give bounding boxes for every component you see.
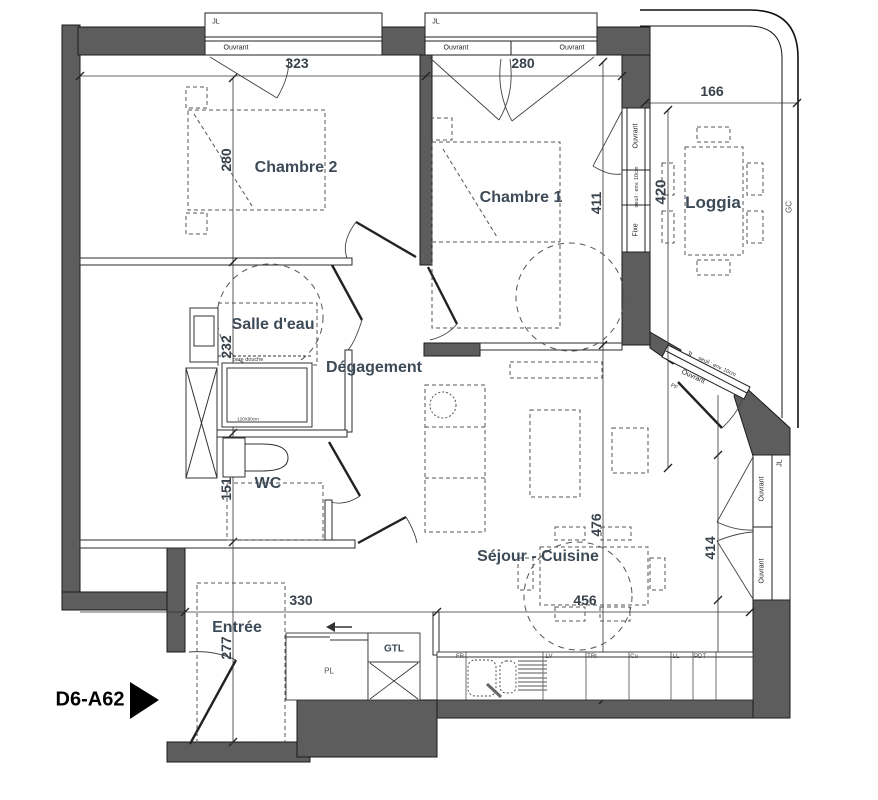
gtl-label: GTL bbox=[384, 644, 404, 655]
floor-plan-drawing bbox=[0, 0, 878, 800]
dim-chambre1-height: 411 bbox=[588, 192, 604, 215]
bed-chambre1 bbox=[430, 118, 560, 328]
dim-sejour-height: 476 bbox=[588, 513, 604, 536]
coffee-table bbox=[530, 410, 580, 497]
closets bbox=[286, 622, 420, 700]
shower bbox=[218, 356, 312, 427]
window-jl-label: JL bbox=[432, 19, 439, 26]
room-label-entree: Entrée bbox=[212, 619, 262, 637]
armchair bbox=[612, 428, 648, 473]
unit-label: D6-A62 bbox=[56, 689, 125, 712]
window-fixe-label: Fixe bbox=[633, 223, 640, 236]
room-label-degagement: Dégagement bbox=[326, 359, 422, 377]
shower-size-label: 120X90cm bbox=[237, 417, 259, 422]
washbasin-bowl bbox=[194, 316, 214, 346]
dim-loggia-height: 420 bbox=[653, 179, 670, 204]
exterior-walls bbox=[62, 25, 790, 762]
dim-sejour-width: 456 bbox=[573, 592, 596, 608]
window-seuil-label: seuil : env. 10cm bbox=[634, 167, 640, 208]
room-label-salle-deau: Salle d'eau bbox=[232, 316, 315, 334]
window-jl-label: JL bbox=[777, 459, 784, 466]
dim-entree-height: 277 bbox=[218, 636, 234, 659]
pare-douche-label: pare douche bbox=[233, 357, 264, 363]
room-label-loggia: Loggia bbox=[685, 193, 741, 213]
dim-wc-height: 151 bbox=[218, 477, 234, 500]
kitchen-label-cu: Cu bbox=[630, 654, 638, 660]
window-ouvrant-label: Ouvrant bbox=[759, 559, 766, 584]
wc-door-leaf bbox=[329, 442, 360, 496]
wall-sejour-stub bbox=[424, 343, 480, 356]
dim-chambre1-width: 280 bbox=[511, 55, 534, 71]
room-label-chambre1: Chambre 1 bbox=[480, 189, 563, 207]
sejour-door-leaf bbox=[358, 517, 406, 543]
room-label-chambre2: Chambre 2 bbox=[255, 159, 338, 177]
window-ouvrant-label: Ouvrant bbox=[444, 45, 469, 52]
entry-direction-arrow bbox=[326, 622, 352, 632]
kitchen-label-fr: FR bbox=[456, 654, 464, 660]
accessibility-zone-entree bbox=[197, 583, 285, 743]
dim-entree-width: 330 bbox=[289, 592, 312, 608]
window-ouvrant-label: Ouvrant bbox=[560, 45, 585, 52]
chambre1-door-leaf bbox=[428, 267, 457, 324]
window-ouvrant-label: Ouvrant bbox=[633, 124, 640, 149]
dim-loggia-width: 166 bbox=[700, 83, 723, 99]
kitchen-label-pd: PDT bbox=[694, 654, 706, 660]
salle-deau-door-leaf bbox=[332, 265, 362, 320]
kitchen-label-tri: TRI bbox=[587, 654, 597, 660]
dim-sejour-window-wall: 414 bbox=[702, 536, 718, 559]
sideboard bbox=[510, 362, 602, 378]
water-heater bbox=[186, 368, 217, 478]
kitchen-label-ll: LL bbox=[673, 654, 680, 660]
loggia-door-leaf bbox=[678, 382, 722, 428]
turning-circle-chambre1 bbox=[516, 243, 624, 351]
window-ouvrant-label: Ouvrant bbox=[759, 477, 766, 502]
sofa bbox=[425, 385, 485, 532]
room-label-sejour: Séjour - Cuisine bbox=[477, 548, 599, 566]
wall-chambre-divider bbox=[420, 55, 432, 265]
dim-chambre2-height: 280 bbox=[218, 148, 234, 171]
dim-chambre2-width: 323 bbox=[285, 55, 308, 71]
floor-plan: Chambre 2 Chambre 1 Loggia Salle d'eau D… bbox=[0, 0, 878, 800]
unit-entrance-arrow-icon bbox=[130, 682, 159, 719]
windows bbox=[205, 13, 790, 600]
window-jl-label: JL bbox=[212, 19, 219, 26]
chambre2-door-leaf bbox=[356, 222, 416, 257]
dim-salle-deau-height: 232 bbox=[218, 335, 234, 358]
window-ouvrant-label: Ouvrant bbox=[224, 45, 249, 52]
room-label-wc: WC bbox=[255, 475, 282, 493]
wall-gc-label: GC bbox=[785, 201, 794, 213]
kitchen-label-lv: LV bbox=[546, 654, 553, 660]
toilet bbox=[223, 438, 288, 477]
pl-label: PL bbox=[324, 667, 334, 676]
